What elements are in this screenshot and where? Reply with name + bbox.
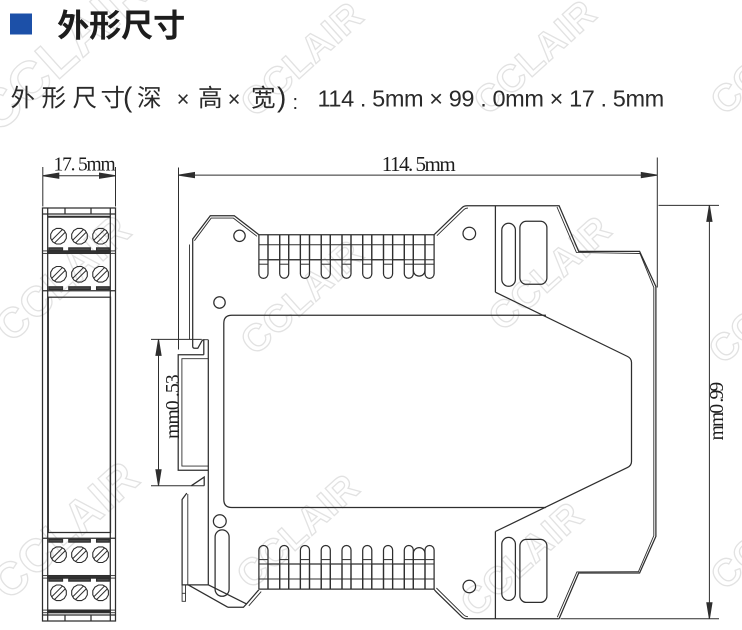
- svg-text:114. 5mm: 114. 5mm: [382, 152, 456, 176]
- svg-text::: :: [293, 92, 299, 114]
- svg-text:114 . 5mm × 99 . 0mm × 17 . 5m: 114 . 5mm × 99 . 0mm × 17 . 5mm: [318, 85, 664, 111]
- svg-text:mm0 .99: mm0 .99: [707, 383, 728, 441]
- svg-text:): ): [277, 81, 286, 112]
- svg-text:mm0 .53: mm0 .53: [163, 375, 184, 439]
- svg-text:×: ×: [228, 86, 241, 111]
- svg-text:×: ×: [177, 86, 190, 111]
- svg-text:17. 5mm: 17. 5mm: [54, 154, 116, 175]
- svg-text:(: (: [123, 81, 133, 112]
